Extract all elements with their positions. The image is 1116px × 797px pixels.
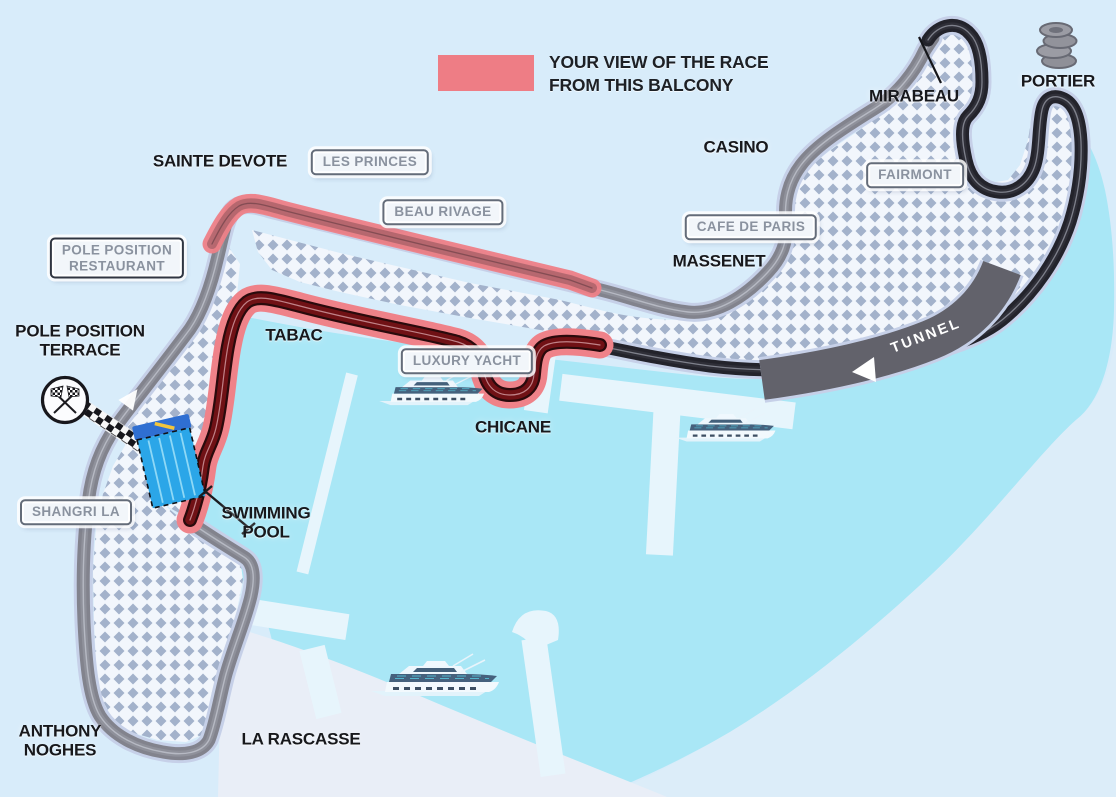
sign-pole-position-restaurant-line2: RESTAURANT	[62, 258, 172, 274]
label-pole-position-terrace-line1: POLE POSITION	[15, 322, 145, 341]
label-anthony-noghes: ANTHONY NOGHES	[19, 722, 102, 759]
label-massenet: MASSENET	[673, 253, 766, 272]
label-mirabeau: MIRABEAU	[869, 88, 959, 107]
sign-pole-position-restaurant: POLE POSITION RESTAURANT	[50, 237, 184, 278]
sign-luxury-yacht: LUXURY YACHT	[401, 348, 533, 374]
label-anthony-noghes-line2: NOGHES	[19, 741, 102, 760]
label-swimming-pool-line2: POOL	[221, 523, 310, 542]
sign-pole-position-restaurant-line1: POLE POSITION	[62, 242, 172, 258]
label-anthony-noghes-line1: ANTHONY	[19, 722, 102, 741]
sign-cafe-de-paris: CAFE DE PARIS	[685, 214, 817, 240]
sign-beau-rivage: BEAU RIVAGE	[382, 199, 503, 225]
label-tabac: TABAC	[265, 327, 322, 346]
label-casino: CASINO	[704, 139, 769, 158]
monaco-track-map: TUNNEL	[0, 0, 1116, 797]
legend-line-1: YOUR VIEW OF THE RACE	[549, 51, 768, 74]
label-la-rascasse: LA RASCASSE	[241, 731, 360, 750]
label-swimming-pool: SWIMMING POOL	[221, 504, 310, 541]
legend-line-2: FROM THIS BALCONY	[549, 74, 768, 97]
sign-fairmont: FAIRMONT	[866, 162, 964, 188]
legend-view-swatch	[438, 55, 534, 91]
sign-les-princes: LES PRINCES	[311, 149, 429, 175]
sign-shangri-la: SHANGRI LA	[20, 499, 132, 525]
label-pole-position-terrace: POLE POSITION TERRACE	[15, 322, 145, 359]
label-sainte-devote: SAINTE DEVOTE	[153, 153, 287, 172]
label-chicane: CHICANE	[475, 419, 551, 438]
label-swimming-pool-line1: SWIMMING	[221, 504, 310, 523]
checkered-flag-icon	[43, 378, 88, 423]
map-canvas: TUNNEL	[0, 0, 1116, 797]
tire-stack-icon	[1037, 23, 1077, 68]
label-portier: PORTIER	[1021, 73, 1095, 92]
legend-text: YOUR VIEW OF THE RACE FROM THIS BALCONY	[549, 51, 768, 97]
label-pole-position-terrace-line2: TERRACE	[15, 341, 145, 360]
